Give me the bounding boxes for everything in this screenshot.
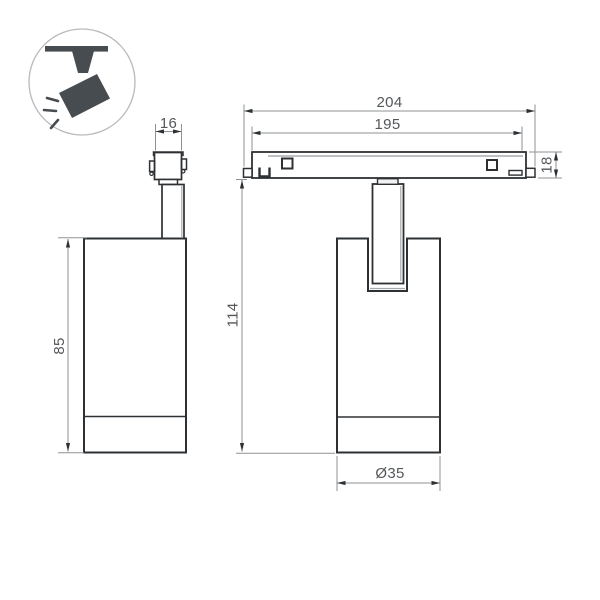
dim-label-16: 16 [160, 115, 177, 132]
front-view [244, 152, 536, 453]
front-stem-cap [378, 179, 399, 185]
dim-body-height: 85 [51, 238, 87, 453]
dim-overall-height: 114 [225, 180, 336, 454]
dim-label-204: 204 [377, 94, 403, 111]
dim-label-18: 18 [539, 156, 556, 173]
side-view [84, 152, 187, 453]
side-lamp-body [84, 239, 186, 453]
dim-label-85: 85 [51, 337, 68, 354]
dimension-drawing-page: 16 85 204 195 18 [0, 0, 600, 600]
front-stem [373, 184, 404, 284]
dim-adapter-width: 16 [156, 115, 182, 151]
icon-ceiling-bar [45, 46, 108, 52]
side-track-adapter [155, 153, 182, 180]
dim-label-195: 195 [375, 116, 401, 133]
dim-label-114: 114 [225, 303, 242, 328]
dim-track-inner-length: 195 [252, 116, 522, 151]
track-spotlight-icon [29, 29, 135, 135]
rail-end-tab-right [526, 168, 535, 177]
side-screw-left [150, 172, 153, 175]
side-adapter-clip-right [182, 159, 187, 170]
rail-end-tab-left [244, 169, 253, 178]
dim-label-35: Ø35 [375, 465, 404, 482]
side-screw-right [182, 170, 185, 173]
side-stem [162, 185, 184, 239]
side-adapter-clip-left [150, 161, 155, 172]
dim-head-diameter: Ø35 [337, 456, 440, 491]
technical-drawing: 16 85 204 195 18 [0, 0, 600, 600]
